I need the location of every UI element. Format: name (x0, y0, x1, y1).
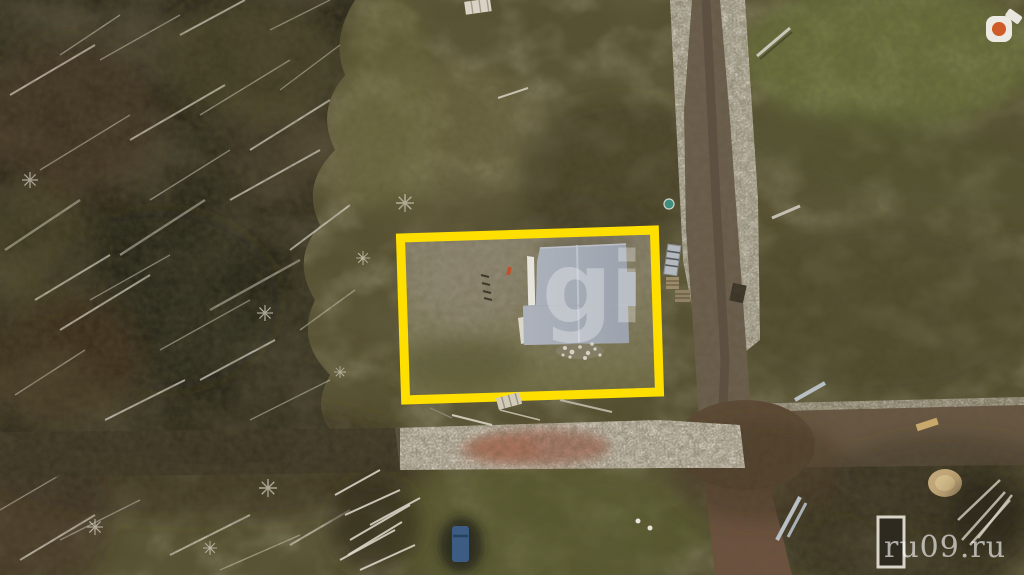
blue-vehicle (452, 526, 469, 562)
site-watermark: ru09.ru (884, 530, 1006, 565)
green-barrel-lid (664, 199, 674, 209)
center-watermark: gi (542, 232, 642, 346)
sand-circle-center (935, 475, 955, 491)
aerial-photo: gi ru09.ru (0, 0, 1024, 575)
white-spot-1 (636, 519, 641, 524)
aerial-photo-canvas: gi ru09.ru (0, 0, 1024, 575)
white-spot-2 (648, 526, 653, 531)
